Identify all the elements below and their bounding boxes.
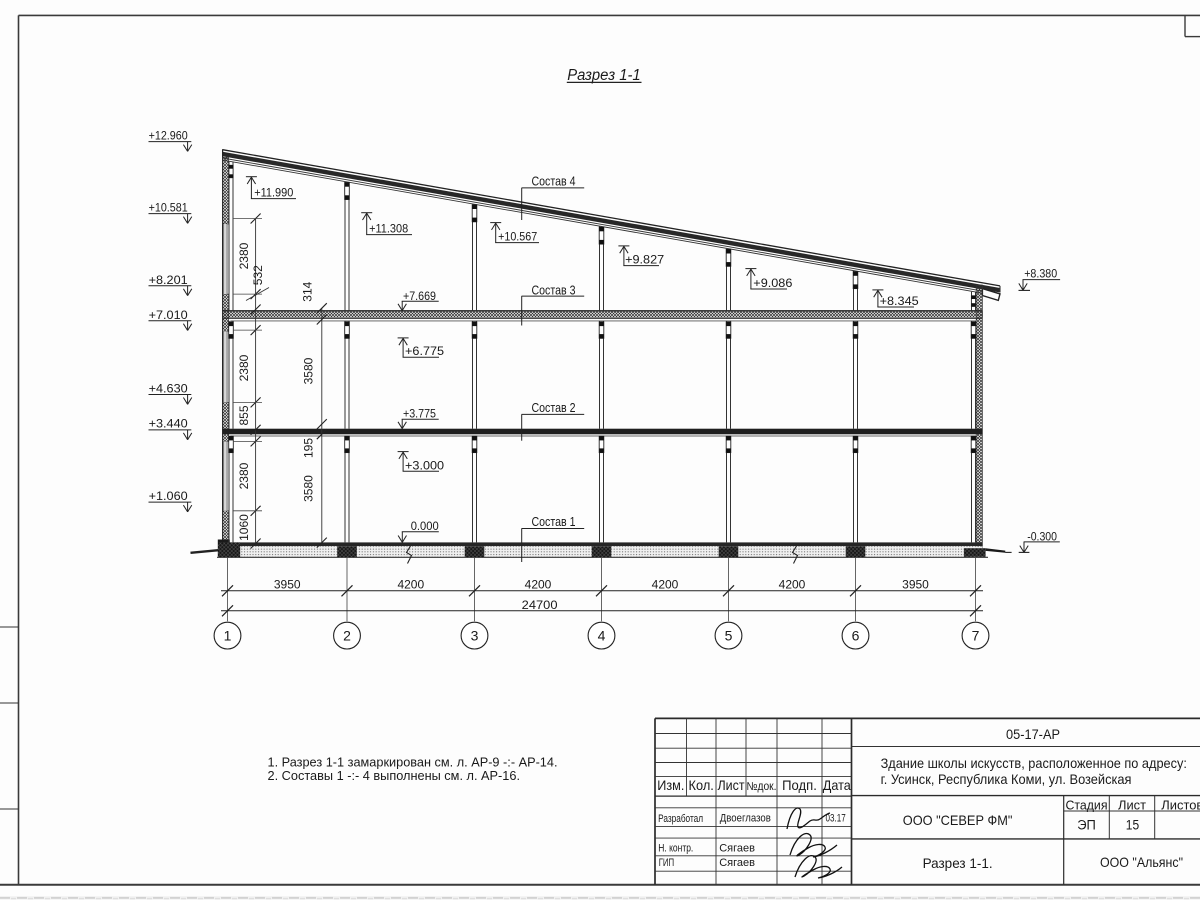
svg-text:Здание школы искусств, располо: Здание школы искусств, расположенное по … [881, 755, 1187, 771]
svg-text:Разрез 1-1.: Разрез 1-1. [923, 855, 993, 871]
svg-text:+3.000: +3.000 [405, 458, 444, 472]
svg-text:+8.345: +8.345 [880, 294, 919, 308]
svg-text:4200: 4200 [525, 578, 552, 592]
svg-text:+3.775: +3.775 [403, 406, 436, 420]
svg-text:Состав 4: Состав 4 [532, 174, 576, 188]
svg-text:4200: 4200 [779, 578, 806, 592]
svg-text:+1.060: +1.060 [149, 489, 188, 503]
svg-text:Н. контр.: Н. контр. [658, 843, 693, 855]
svg-text:532: 532 [251, 265, 265, 285]
svg-text:4: 4 [598, 628, 606, 644]
svg-text:2: 2 [343, 628, 351, 644]
svg-text:Сягаев: Сягаев [719, 857, 755, 869]
svg-text:Двоеглазов: Двоеглазов [720, 813, 771, 825]
svg-text:3580: 3580 [302, 475, 316, 502]
svg-text:Состав 1: Состав 1 [532, 515, 576, 529]
svg-text:3950: 3950 [902, 578, 929, 592]
svg-text:7: 7 [972, 628, 980, 644]
svg-text:4200: 4200 [397, 578, 424, 592]
svg-text:+7.010: +7.010 [149, 308, 188, 322]
svg-text:Лист: Лист [717, 777, 745, 793]
svg-text:15: 15 [1126, 818, 1139, 833]
svg-text:Листов: Листов [1161, 798, 1200, 813]
svg-text:3580: 3580 [302, 357, 316, 384]
svg-text:2. Составы 1 -:- 4 выполнены с: 2. Составы 1 -:- 4 выполнены см. л. АР-1… [268, 768, 521, 783]
svg-text:Лист: Лист [1118, 798, 1146, 813]
svg-text:ЭП: ЭП [1077, 818, 1096, 833]
svg-text:+3.440: +3.440 [149, 417, 188, 431]
svg-text:24700: 24700 [522, 598, 558, 612]
svg-text:+10.581: +10.581 [149, 201, 188, 215]
svg-text:+9.086: +9.086 [753, 276, 792, 290]
svg-text:+11.990: +11.990 [254, 186, 293, 200]
svg-text:ГИП: ГИП [659, 857, 675, 869]
svg-text:2380: 2380 [237, 242, 251, 269]
svg-text:+8.201: +8.201 [149, 273, 188, 287]
svg-text:05-17-АР: 05-17-АР [1006, 726, 1060, 742]
svg-text:-0.300: -0.300 [1027, 529, 1057, 543]
svg-text:3950: 3950 [274, 578, 301, 592]
svg-text:+11.308: +11.308 [369, 221, 408, 235]
svg-text:03.17: 03.17 [826, 813, 846, 825]
svg-text:+9.827: +9.827 [625, 253, 664, 267]
svg-text:Состав 2: Состав 2 [532, 401, 576, 415]
svg-text:ООО "СЕВЕР ФМ": ООО "СЕВЕР ФМ" [903, 812, 1013, 828]
svg-text:Подп.: Подп. [782, 777, 817, 793]
svg-text:5: 5 [725, 628, 733, 644]
svg-text:№док.: №док. [747, 781, 777, 793]
svg-text:+8.380: +8.380 [1024, 266, 1057, 280]
svg-text:1060: 1060 [237, 514, 251, 541]
svg-text:+12.960: +12.960 [149, 129, 188, 143]
svg-text:4200: 4200 [652, 578, 679, 592]
svg-text:2380: 2380 [237, 462, 251, 489]
svg-text:195: 195 [302, 438, 316, 458]
svg-text:г. Усинск, Республика Коми, ул: г. Усинск, Республика Коми, ул. Возейска… [881, 771, 1132, 787]
svg-text:Разрез 1-1: Разрез 1-1 [567, 67, 641, 84]
svg-text:Разработал: Разработал [658, 813, 703, 825]
svg-text:Состав 3: Состав 3 [532, 283, 576, 297]
svg-text:Изм.: Изм. [657, 777, 684, 793]
svg-text:6: 6 [852, 628, 860, 644]
svg-text:Дата: Дата [823, 777, 851, 793]
svg-text:Кол.: Кол. [689, 777, 714, 793]
svg-text:314: 314 [301, 281, 315, 301]
svg-text:ООО "Альянс": ООО "Альянс" [1100, 854, 1183, 870]
svg-text:3: 3 [471, 628, 479, 644]
svg-text:2380: 2380 [237, 354, 251, 381]
svg-text:+10.567: +10.567 [498, 229, 537, 243]
svg-text:0.000: 0.000 [411, 519, 439, 533]
svg-text:Сягаев: Сягаев [719, 843, 755, 855]
svg-text:1: 1 [224, 628, 232, 644]
svg-text:855: 855 [237, 405, 251, 425]
svg-text:+6.775: +6.775 [405, 344, 444, 358]
svg-text:Стадия: Стадия [1066, 798, 1108, 813]
svg-text:+4.630: +4.630 [149, 381, 188, 395]
